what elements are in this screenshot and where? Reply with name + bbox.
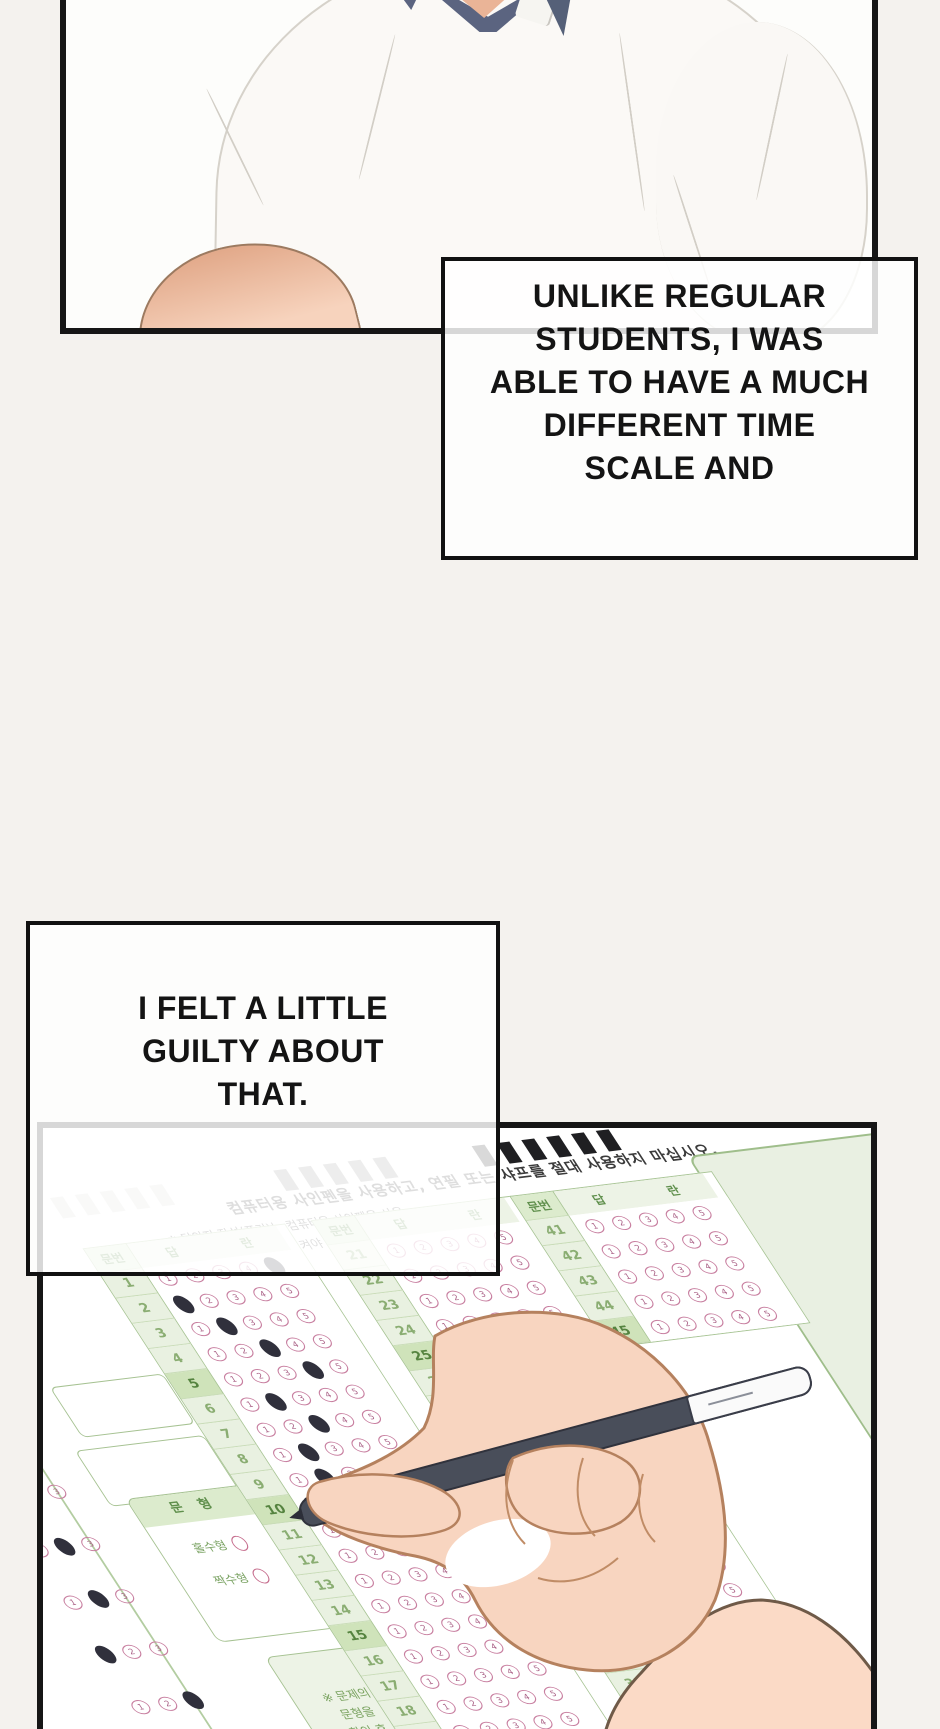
answer-mark-filled xyxy=(37,1427,38,1450)
thumb-line xyxy=(538,1558,618,1581)
index-finger xyxy=(308,1474,460,1536)
speech-2-line: I FELT A LITTLE xyxy=(30,987,496,1030)
speech-1-line: STUDENTS, I WAS xyxy=(445,318,914,361)
middle-finger xyxy=(506,1446,640,1534)
speech-2-line: THAT. xyxy=(30,1073,496,1116)
finger-line xyxy=(639,1474,655,1542)
answer-bubble: 2 xyxy=(37,1487,43,1503)
speech-2-text: I FELT A LITTLEGUILTY ABOUTTHAT. xyxy=(30,987,496,1116)
speech-box-1: UNLIKE REGULARSTUDENTS, I WASABLE TO HAV… xyxy=(441,257,918,560)
speech-1-line: SCALE AND xyxy=(445,447,914,490)
speech-2-line: GUILTY ABOUT xyxy=(30,1030,496,1073)
speech-1-line: DIFFERENT TIME xyxy=(445,404,914,447)
speech-box-2: I FELT A LITTLEGUILTY ABOUTTHAT. xyxy=(26,921,500,1276)
speech-1-line: ABLE TO HAVE A MUCH xyxy=(445,361,914,404)
comic-page: 컴퓨터용 사인펜을 사용하고, 연필 또는 샤프를 절대 사용하지 마십시오. … xyxy=(0,0,940,1729)
speech-1-text: UNLIKE REGULARSTUDENTS, I WASABLE TO HAV… xyxy=(445,275,914,490)
speech-1-line: UNLIKE REGULAR xyxy=(445,275,914,318)
